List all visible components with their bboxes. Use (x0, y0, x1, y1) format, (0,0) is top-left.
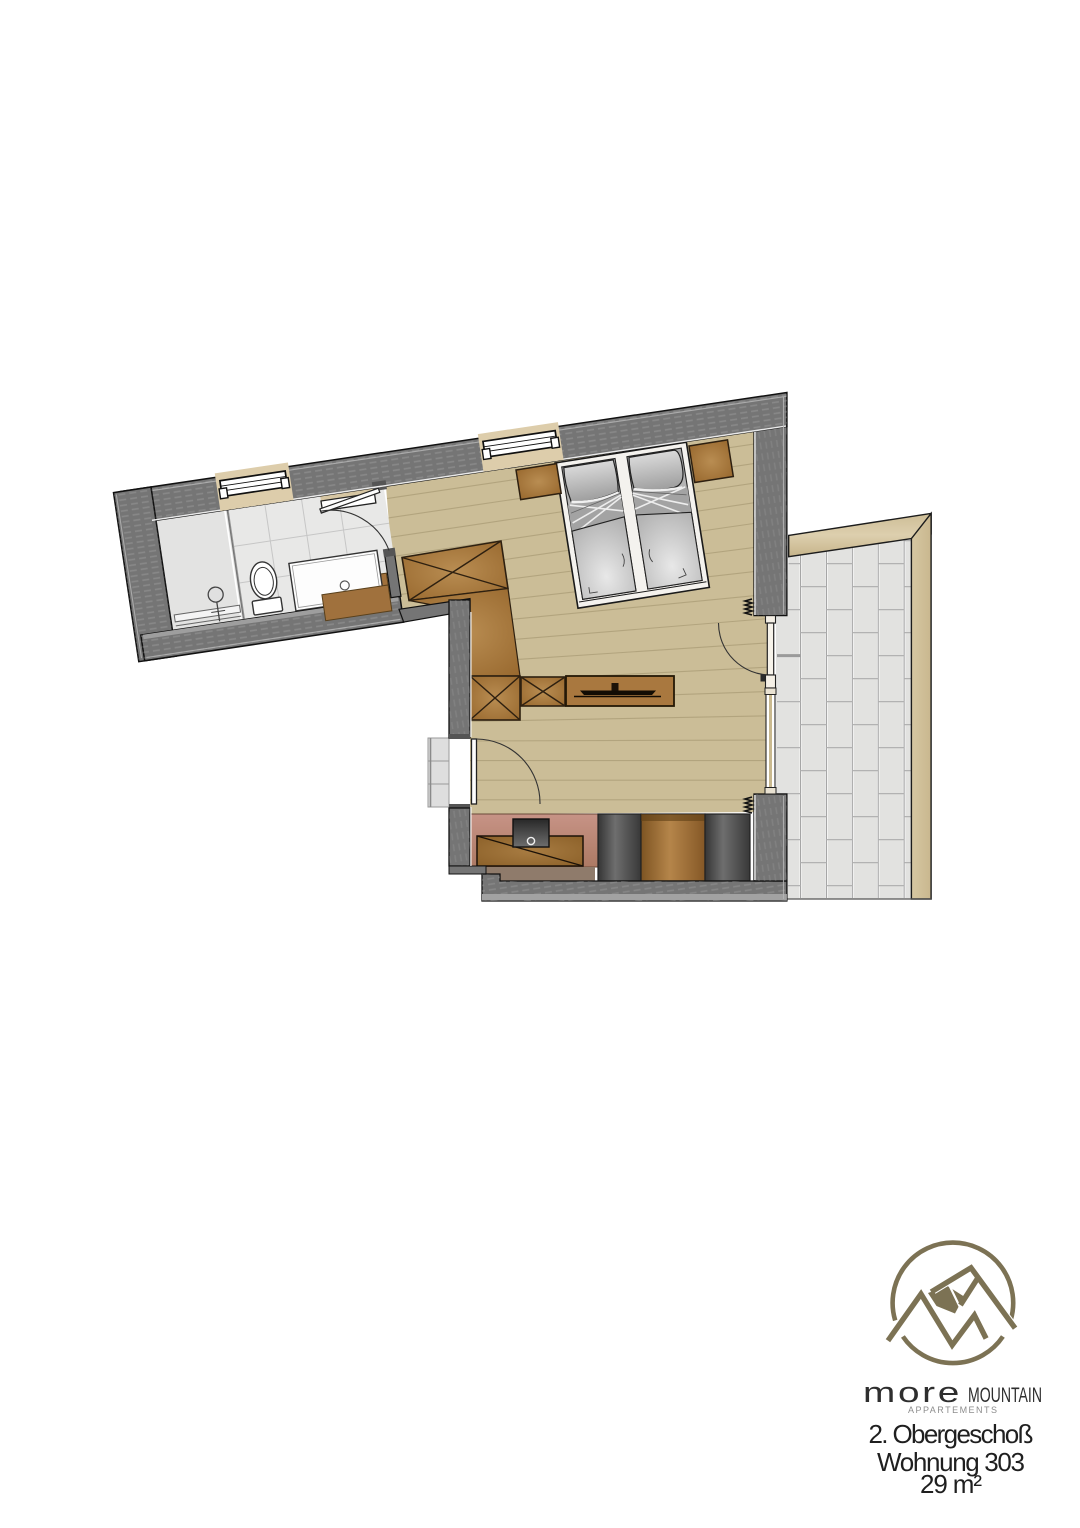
svg-text:APPARTEMENTS: APPARTEMENTS (908, 1405, 999, 1415)
svg-text:29 m²: 29 m² (920, 1469, 982, 1499)
svg-text:2. Obergeschoß: 2. Obergeschoß (869, 1419, 1034, 1449)
svg-text:MOUNTAIN: MOUNTAIN (968, 1383, 1042, 1407)
